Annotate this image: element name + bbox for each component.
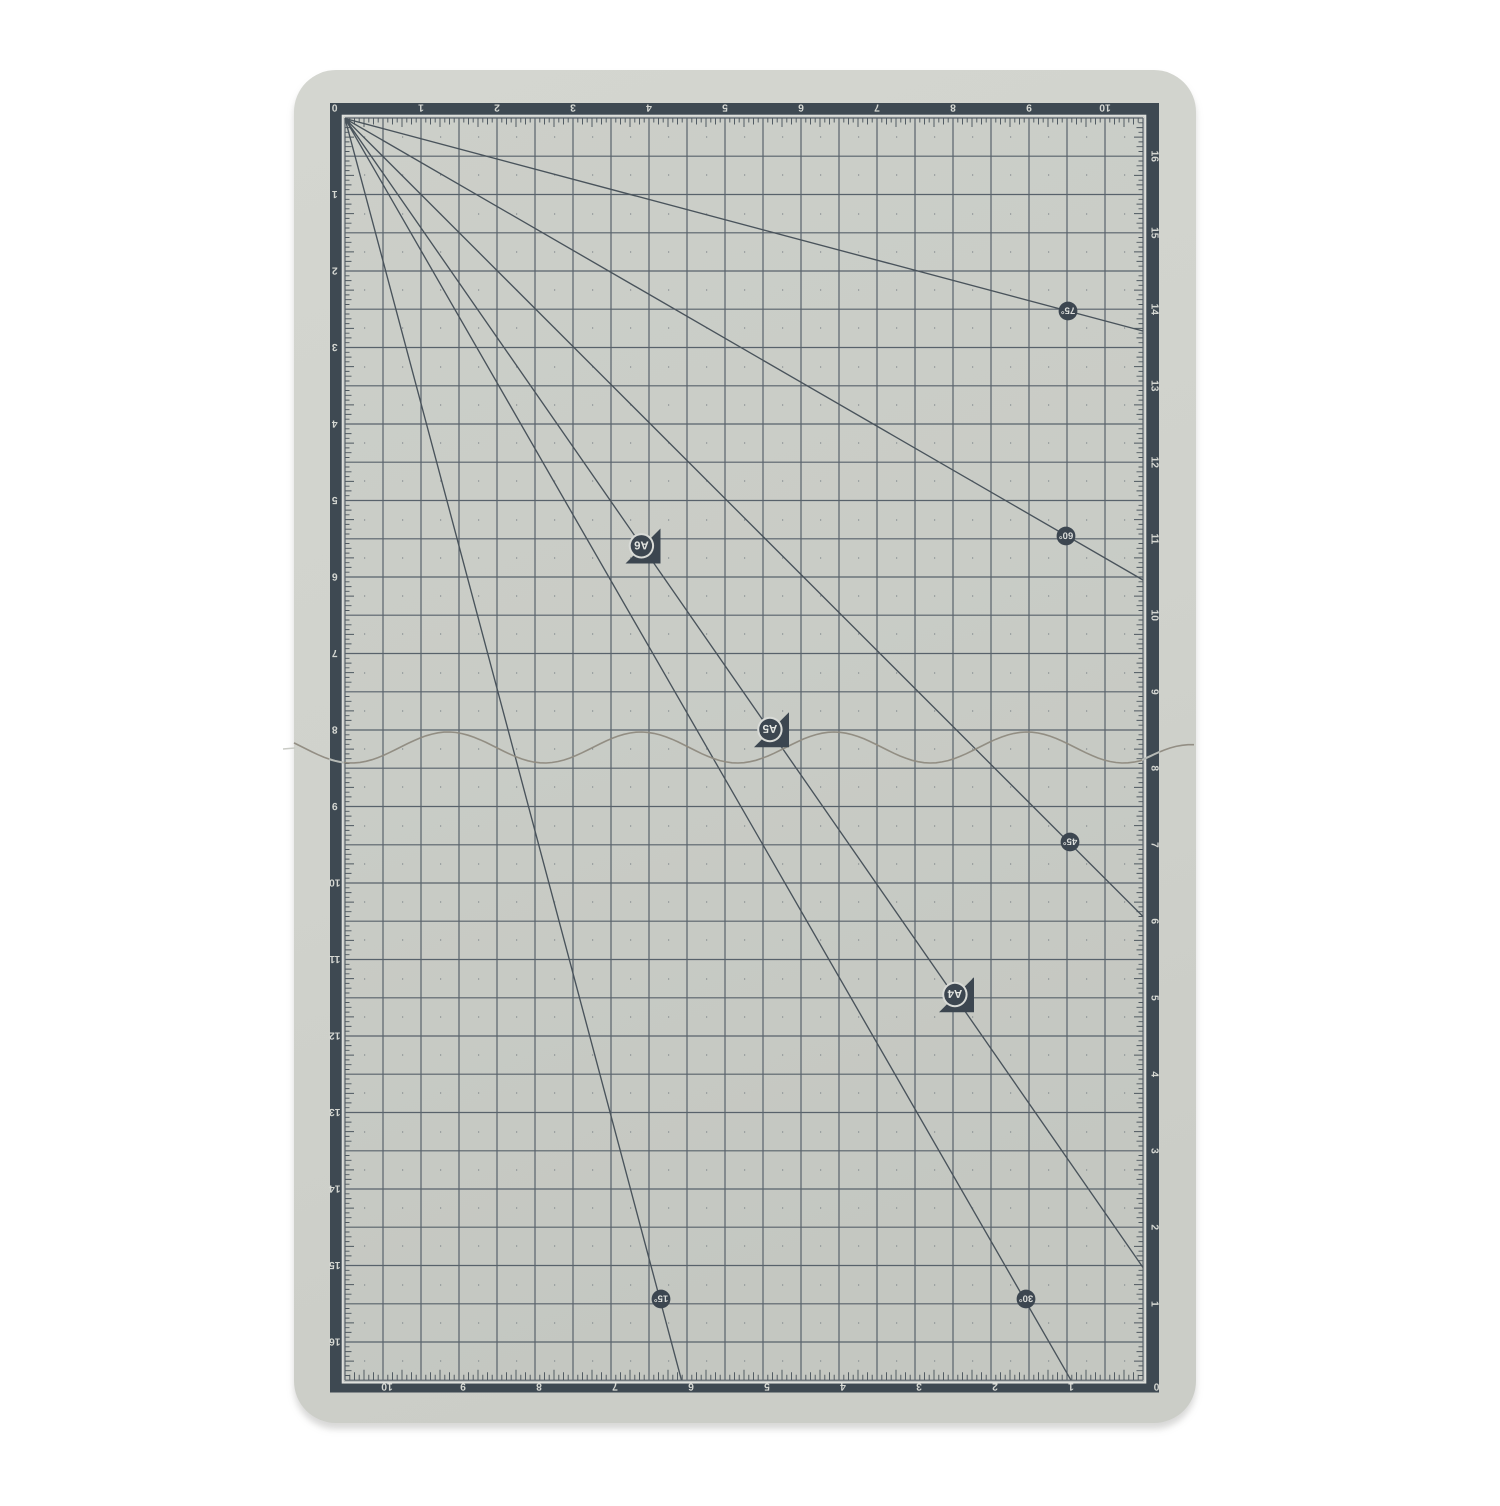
svg-text:10: 10: [329, 876, 341, 887]
svg-text:5: 5: [722, 102, 728, 113]
svg-text:4: 4: [332, 417, 338, 428]
svg-text:3: 3: [332, 341, 338, 352]
svg-text:15: 15: [1148, 227, 1159, 239]
svg-text:2: 2: [494, 102, 500, 113]
svg-text:14: 14: [329, 1182, 341, 1193]
svg-text:A5: A5: [762, 722, 777, 734]
svg-text:3: 3: [916, 1380, 922, 1391]
svg-text:9: 9: [332, 800, 338, 811]
svg-text:5: 5: [764, 1380, 770, 1391]
svg-text:5: 5: [1148, 995, 1159, 1001]
svg-text:9: 9: [1148, 689, 1159, 695]
svg-text:8: 8: [1148, 765, 1159, 771]
svg-text:7: 7: [1148, 842, 1159, 848]
svg-text:3: 3: [570, 102, 576, 113]
svg-text:10: 10: [1099, 102, 1111, 113]
svg-text:16: 16: [1148, 150, 1159, 162]
svg-text:45°: 45°: [1063, 836, 1078, 847]
svg-text:11: 11: [1148, 533, 1159, 544]
svg-text:30°: 30°: [1019, 1293, 1034, 1304]
svg-text:4: 4: [646, 102, 652, 113]
svg-text:15°: 15°: [654, 1293, 669, 1304]
svg-text:2: 2: [992, 1380, 998, 1391]
svg-text:8: 8: [950, 102, 956, 113]
svg-text:10: 10: [1148, 609, 1159, 621]
svg-text:4: 4: [840, 1380, 846, 1391]
svg-text:15: 15: [329, 1259, 341, 1270]
svg-text:2: 2: [1148, 1224, 1159, 1230]
svg-text:6: 6: [798, 102, 804, 113]
svg-text:7: 7: [874, 102, 880, 113]
svg-text:12: 12: [1148, 456, 1159, 468]
svg-text:4: 4: [1148, 1071, 1159, 1077]
svg-text:1: 1: [1068, 1380, 1074, 1391]
svg-text:13: 13: [329, 1106, 341, 1117]
svg-text:60°: 60°: [1059, 530, 1074, 541]
svg-text:75°: 75°: [1061, 305, 1076, 316]
svg-text:14: 14: [1148, 303, 1159, 315]
svg-text:7: 7: [612, 1380, 618, 1391]
svg-text:6: 6: [1148, 918, 1159, 924]
svg-text:8: 8: [332, 723, 338, 734]
svg-text:11: 11: [329, 953, 340, 964]
svg-text:12: 12: [329, 1029, 341, 1040]
svg-text:8: 8: [536, 1380, 542, 1391]
svg-text:9: 9: [1026, 102, 1032, 113]
svg-text:0: 0: [1153, 1380, 1159, 1391]
svg-text:10: 10: [381, 1380, 393, 1391]
svg-text:13: 13: [1148, 380, 1159, 392]
svg-text:1: 1: [1148, 1301, 1159, 1307]
svg-text:A6: A6: [634, 539, 649, 551]
svg-text:1: 1: [332, 188, 338, 199]
svg-text:2: 2: [332, 264, 338, 275]
svg-text:6: 6: [688, 1380, 694, 1391]
svg-text:9: 9: [460, 1380, 466, 1391]
svg-text:5: 5: [332, 494, 338, 505]
svg-text:1: 1: [418, 102, 424, 113]
svg-text:A4: A4: [947, 987, 962, 999]
svg-text:6: 6: [332, 570, 338, 581]
svg-text:7: 7: [332, 647, 338, 658]
svg-text:0: 0: [332, 102, 338, 113]
svg-text:3: 3: [1148, 1148, 1159, 1154]
svg-text:16: 16: [329, 1335, 341, 1346]
